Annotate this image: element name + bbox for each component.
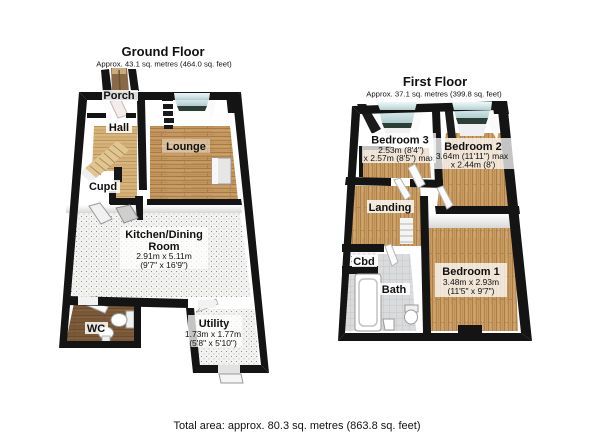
svg-text:Approx. 37.1 sq. metres (399.8: Approx. 37.1 sq. metres (399.8 sq. feet): [366, 90, 502, 99]
svg-text:Total area: approx. 80.3 sq. m: Total area: approx. 80.3 sq. metres (863…: [173, 420, 420, 432]
svg-text:Cupd: Cupd: [89, 181, 117, 193]
svg-text:(5'8" x 5'10"): (5'8" x 5'10"): [189, 338, 237, 348]
svg-text:Cbd: Cbd: [353, 256, 374, 268]
svg-text:Landing: Landing: [369, 202, 412, 214]
svg-text:WC: WC: [87, 323, 105, 335]
svg-text:Hall: Hall: [109, 122, 129, 134]
svg-text:(9'7" x 16'9"): (9'7" x 16'9"): [140, 260, 188, 270]
svg-text:x 2.57m (8'5") max: x 2.57m (8'5") max: [364, 153, 436, 163]
svg-text:Lounge: Lounge: [166, 141, 206, 153]
svg-text:(11'5" x 9'7"): (11'5" x 9'7"): [448, 286, 495, 296]
svg-text:First Floor: First Floor: [403, 74, 467, 89]
svg-text:x 2.44m (8'): x 2.44m (8'): [451, 160, 496, 170]
svg-text:Porch: Porch: [103, 90, 134, 102]
svg-text:Kitchen/Dining: Kitchen/Dining: [125, 229, 203, 241]
svg-text:Approx. 43.1 sq. metres (464.0: Approx. 43.1 sq. metres (464.0 sq. feet): [96, 60, 232, 69]
svg-text:Bath: Bath: [382, 284, 407, 296]
svg-text:Ground Floor: Ground Floor: [121, 44, 204, 59]
